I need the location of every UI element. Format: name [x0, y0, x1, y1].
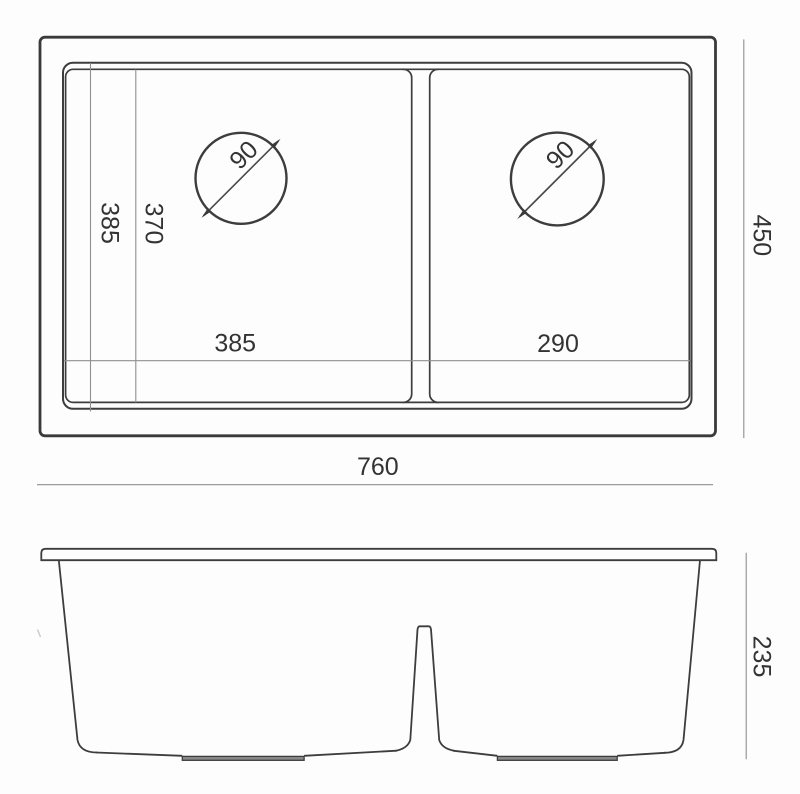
svg-text:450: 450: [747, 214, 775, 256]
svg-text:760: 760: [357, 453, 399, 481]
svg-text:385: 385: [214, 330, 256, 358]
svg-text:290: 290: [537, 330, 579, 358]
svg-text:370: 370: [140, 203, 168, 245]
svg-text:385: 385: [95, 202, 123, 244]
svg-text:235: 235: [748, 636, 776, 678]
